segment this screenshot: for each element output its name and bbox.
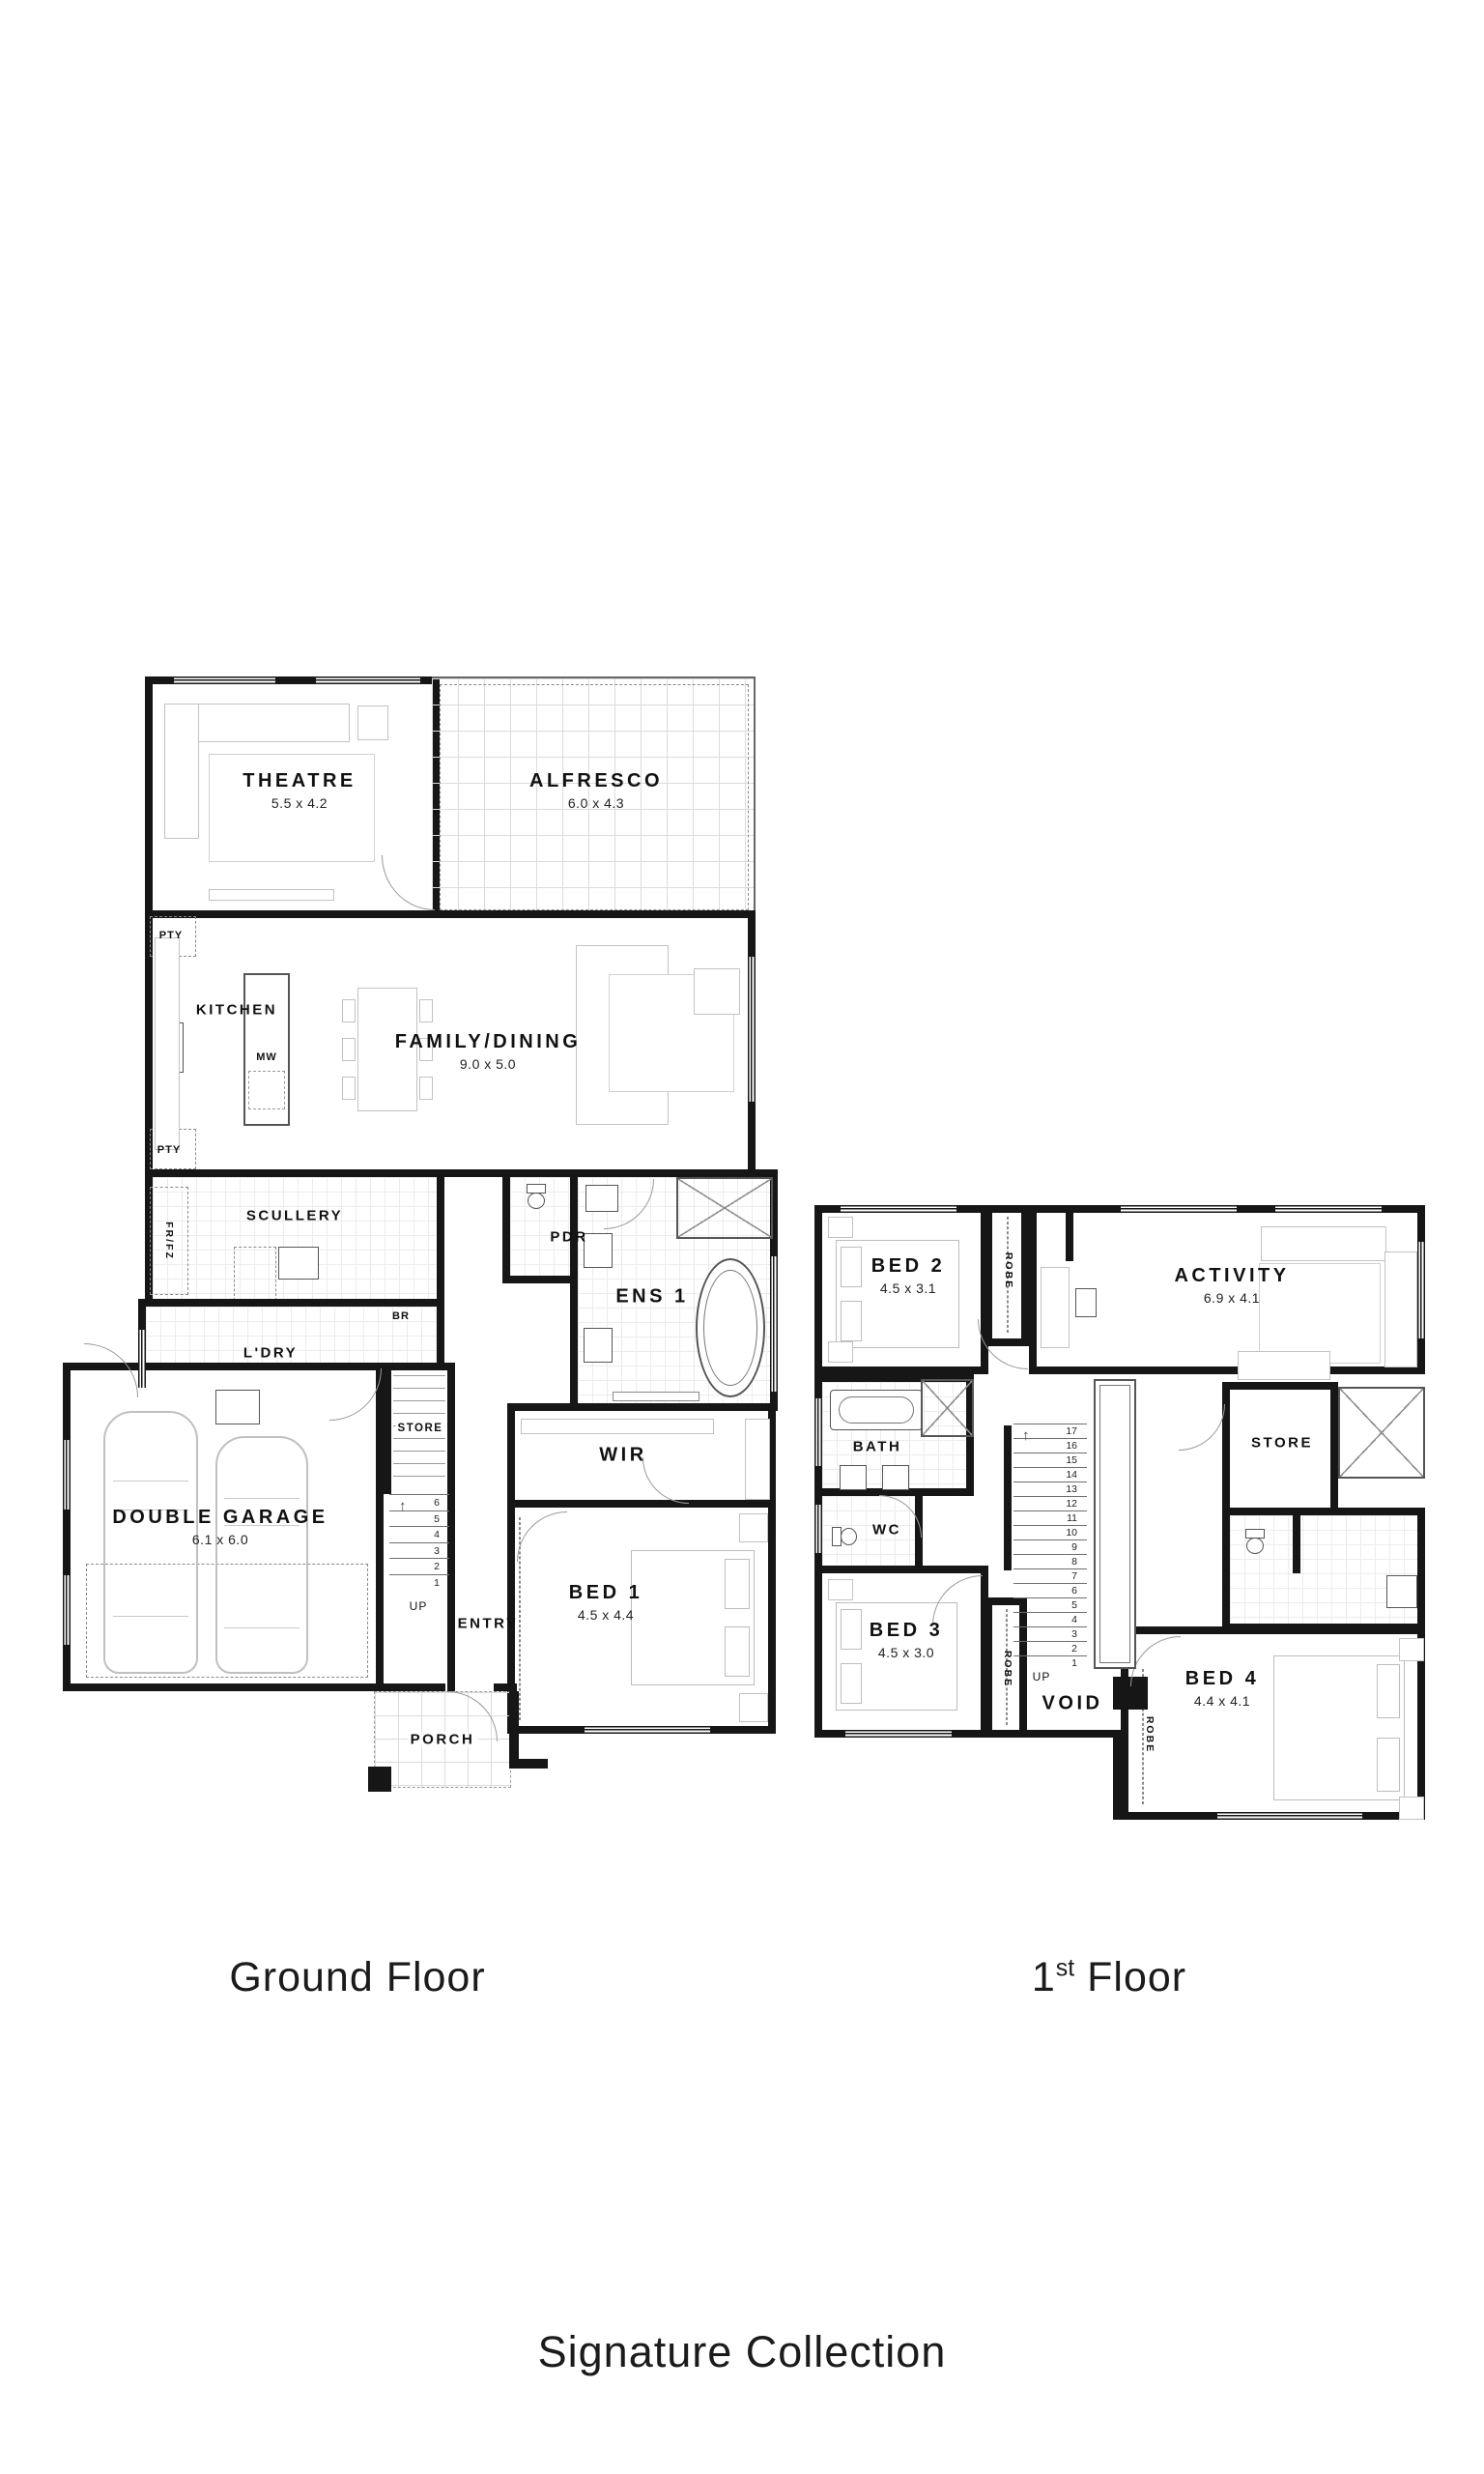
bed2-window (841, 1205, 956, 1213)
alfresco-label: ALFRESCO 6.0 x 4.3 (529, 770, 663, 811)
entry-bottom-wall-right (494, 1683, 517, 1691)
bed4-robe-label: ROBE (1144, 1716, 1156, 1753)
bed2-robe-label: ROBE (1003, 1252, 1014, 1289)
laundry-label: L'DRY (243, 1345, 298, 1362)
bed1-label: BED 1 4.5 x 4.4 (569, 1582, 642, 1623)
porch-pillar (368, 1767, 391, 1792)
room-dims: 6.9 x 4.1 (1174, 1290, 1289, 1306)
ground-store-label: STORE (396, 1422, 445, 1435)
floorplan-page: THEATRE 5.5 x 4.2 ALFRESCO 6.0 x 4.3 (0, 0, 1484, 2474)
room-name: PORCH (408, 1732, 478, 1748)
room-name: ACTIVITY (1174, 1265, 1289, 1287)
stairs-up-arrow: ↑ (399, 1498, 407, 1514)
bed3-window (845, 1730, 952, 1738)
room-name: BED 1 (569, 1582, 642, 1604)
stair-number: 4 (1013, 1612, 1087, 1626)
pty-bottom-label: PTY (157, 1144, 181, 1156)
bath-window (814, 1398, 822, 1466)
first-floor-ordinal: st (1056, 1955, 1074, 1982)
stair-number: 8 (1013, 1554, 1087, 1568)
room-name: VOID (1042, 1693, 1103, 1715)
first-floor-plan: BED 2 4.5 x 3.1 ROBE ACTIVITY 6.9 x 4.1 (802, 1194, 1430, 1822)
room-name: ENTRY (458, 1616, 519, 1632)
store-door-arc (1179, 1404, 1225, 1451)
room-ensuite2 (1222, 1508, 1425, 1631)
stair-number: 3 (1013, 1626, 1087, 1641)
kitchen-label: KITCHEN (196, 1002, 277, 1019)
first-floor-word: Floor (1087, 1954, 1186, 2000)
powder-label: PDR (550, 1229, 587, 1246)
activity-label: ACTIVITY 6.9 x 4.1 (1174, 1265, 1289, 1306)
stair-number: 3 (389, 1542, 449, 1559)
stair-number: 2 (389, 1558, 449, 1574)
garage-window (63, 1440, 71, 1510)
room-name: FAMILY/DINING (395, 1031, 582, 1053)
ensuite2-divider (1293, 1515, 1300, 1573)
room-name: ENS 1 (615, 1286, 688, 1309)
stair-number: 9 (1013, 1539, 1087, 1554)
stairs-up-arrow: ↑ (1022, 1427, 1030, 1444)
ensuite2-shower (1338, 1387, 1425, 1479)
room-name: KITCHEN (196, 1002, 277, 1019)
porch-label: PORCH (408, 1732, 478, 1748)
stair-number: 13 (1013, 1482, 1087, 1496)
room-name: THEATRE (243, 770, 356, 792)
stair-number: 7 (1013, 1568, 1087, 1583)
family-window (748, 957, 756, 1102)
stair-number: 15 (1013, 1453, 1087, 1467)
double-garage-label: DOUBLE GARAGE 6.1 x 6.0 (112, 1507, 328, 1547)
first-floor-title: 1st Floor (1032, 1954, 1186, 2001)
activity-window-side (1417, 1242, 1425, 1338)
first-floor-number: 1 (1032, 1954, 1056, 2000)
first-store-label: STORE (1251, 1435, 1313, 1452)
pty-top-label: PTY (159, 930, 183, 941)
bed4-label: BED 4 4.4 x 4.1 (1185, 1668, 1259, 1709)
bed2-label: BED 2 4.5 x 3.1 (871, 1255, 945, 1296)
theatre-window (174, 676, 275, 684)
room-name: L'DRY (243, 1345, 298, 1362)
theatre-label: THEATRE 5.5 x 4.2 (243, 770, 356, 811)
bed1-window (585, 1726, 710, 1734)
ensuite1-bath (696, 1258, 765, 1397)
bed3-robe-label: ROBE (1002, 1651, 1013, 1687)
laundry-window (138, 1330, 146, 1388)
void-step-wall (1113, 1730, 1121, 1820)
room-name: STORE (396, 1422, 445, 1435)
first-floor-stairs: 1716151413121110987654321 (1013, 1424, 1087, 1670)
room-dims: 4.5 x 4.4 (569, 1607, 642, 1623)
void-label: VOID (1042, 1693, 1103, 1715)
laundry-door-arc (84, 1343, 138, 1397)
activity-window (1121, 1205, 1237, 1213)
ground-floor-plan: THEATRE 5.5 x 4.2 ALFRESCO 6.0 x 4.3 (63, 676, 789, 1802)
bed3-label: BED 3 4.5 x 3.0 (870, 1620, 943, 1660)
bed4-window (1217, 1812, 1362, 1820)
room-dims: 5.5 x 4.2 (243, 795, 356, 811)
ensuite1-shower (676, 1177, 773, 1239)
activity-window (1275, 1205, 1382, 1213)
room-name: ALFRESCO (529, 770, 663, 792)
fridge-freezer-label: FR/FZ (163, 1222, 175, 1260)
room-name: BED 3 (870, 1620, 943, 1642)
first-up-label: UP (1033, 1670, 1051, 1683)
stairwell-wall (1004, 1425, 1012, 1570)
room-name: WIR (599, 1445, 646, 1467)
room-name: BATH (853, 1439, 902, 1455)
room-name: SCULLERY (246, 1208, 343, 1224)
stair-number: 5 (1013, 1597, 1087, 1612)
wc-label: WC (872, 1522, 901, 1539)
porch-step-wall (509, 1759, 548, 1769)
room-dims: 6.1 x 6.0 (112, 1532, 328, 1547)
stair-number: 1 (389, 1574, 449, 1591)
ground-floor-title: Ground Floor (229, 1954, 485, 2001)
porch-right-wall (509, 1691, 519, 1767)
wir-label: WIR (599, 1445, 646, 1467)
stair-rail (1094, 1379, 1136, 1669)
collection-title: Signature Collection (538, 2327, 947, 2377)
bath-label: BATH (853, 1439, 902, 1455)
stair-number: 11 (1013, 1510, 1087, 1525)
garage-window (63, 1575, 71, 1645)
stair-number: 4 (389, 1526, 449, 1542)
stair-number: 12 (1013, 1496, 1087, 1510)
family-dining-label: FAMILY/DINING 9.0 x 5.0 (395, 1031, 582, 1072)
entry-bottom-wall-left (366, 1683, 445, 1691)
microwave-label: MW (256, 1051, 277, 1063)
room-scullery (145, 1169, 444, 1307)
stair-number: 6 (1013, 1583, 1087, 1597)
room-dims: 6.0 x 4.3 (529, 795, 663, 811)
entry-label: ENTRY (458, 1616, 519, 1632)
bath-shower (921, 1379, 974, 1437)
stair-number: 2 (1013, 1641, 1087, 1655)
room-name: DOUBLE GARAGE (112, 1507, 328, 1529)
room-name: BED 2 (871, 1255, 945, 1278)
stair-number: 10 (1013, 1525, 1087, 1539)
stair-number: 14 (1013, 1467, 1087, 1482)
broom-label: BR (392, 1310, 410, 1322)
ground-up-label: UP (410, 1599, 428, 1613)
room-name: WC (872, 1522, 901, 1539)
room-dims: 9.0 x 5.0 (395, 1056, 582, 1072)
room-dims: 4.5 x 3.1 (871, 1280, 945, 1296)
scullery-label: SCULLERY (246, 1208, 343, 1224)
room-dims: 4.4 x 4.1 (1185, 1693, 1259, 1709)
room-name: STORE (1251, 1435, 1313, 1452)
room-name: PDR (550, 1229, 587, 1246)
wc-window (814, 1505, 822, 1553)
room-name: BED 4 (1185, 1668, 1259, 1690)
ensuite1-window (770, 1256, 778, 1392)
stair-number: 1 (1013, 1655, 1087, 1670)
room-dims: 4.5 x 3.0 (870, 1645, 943, 1660)
theatre-window (316, 676, 420, 684)
ensuite1-label: ENS 1 (615, 1286, 688, 1309)
